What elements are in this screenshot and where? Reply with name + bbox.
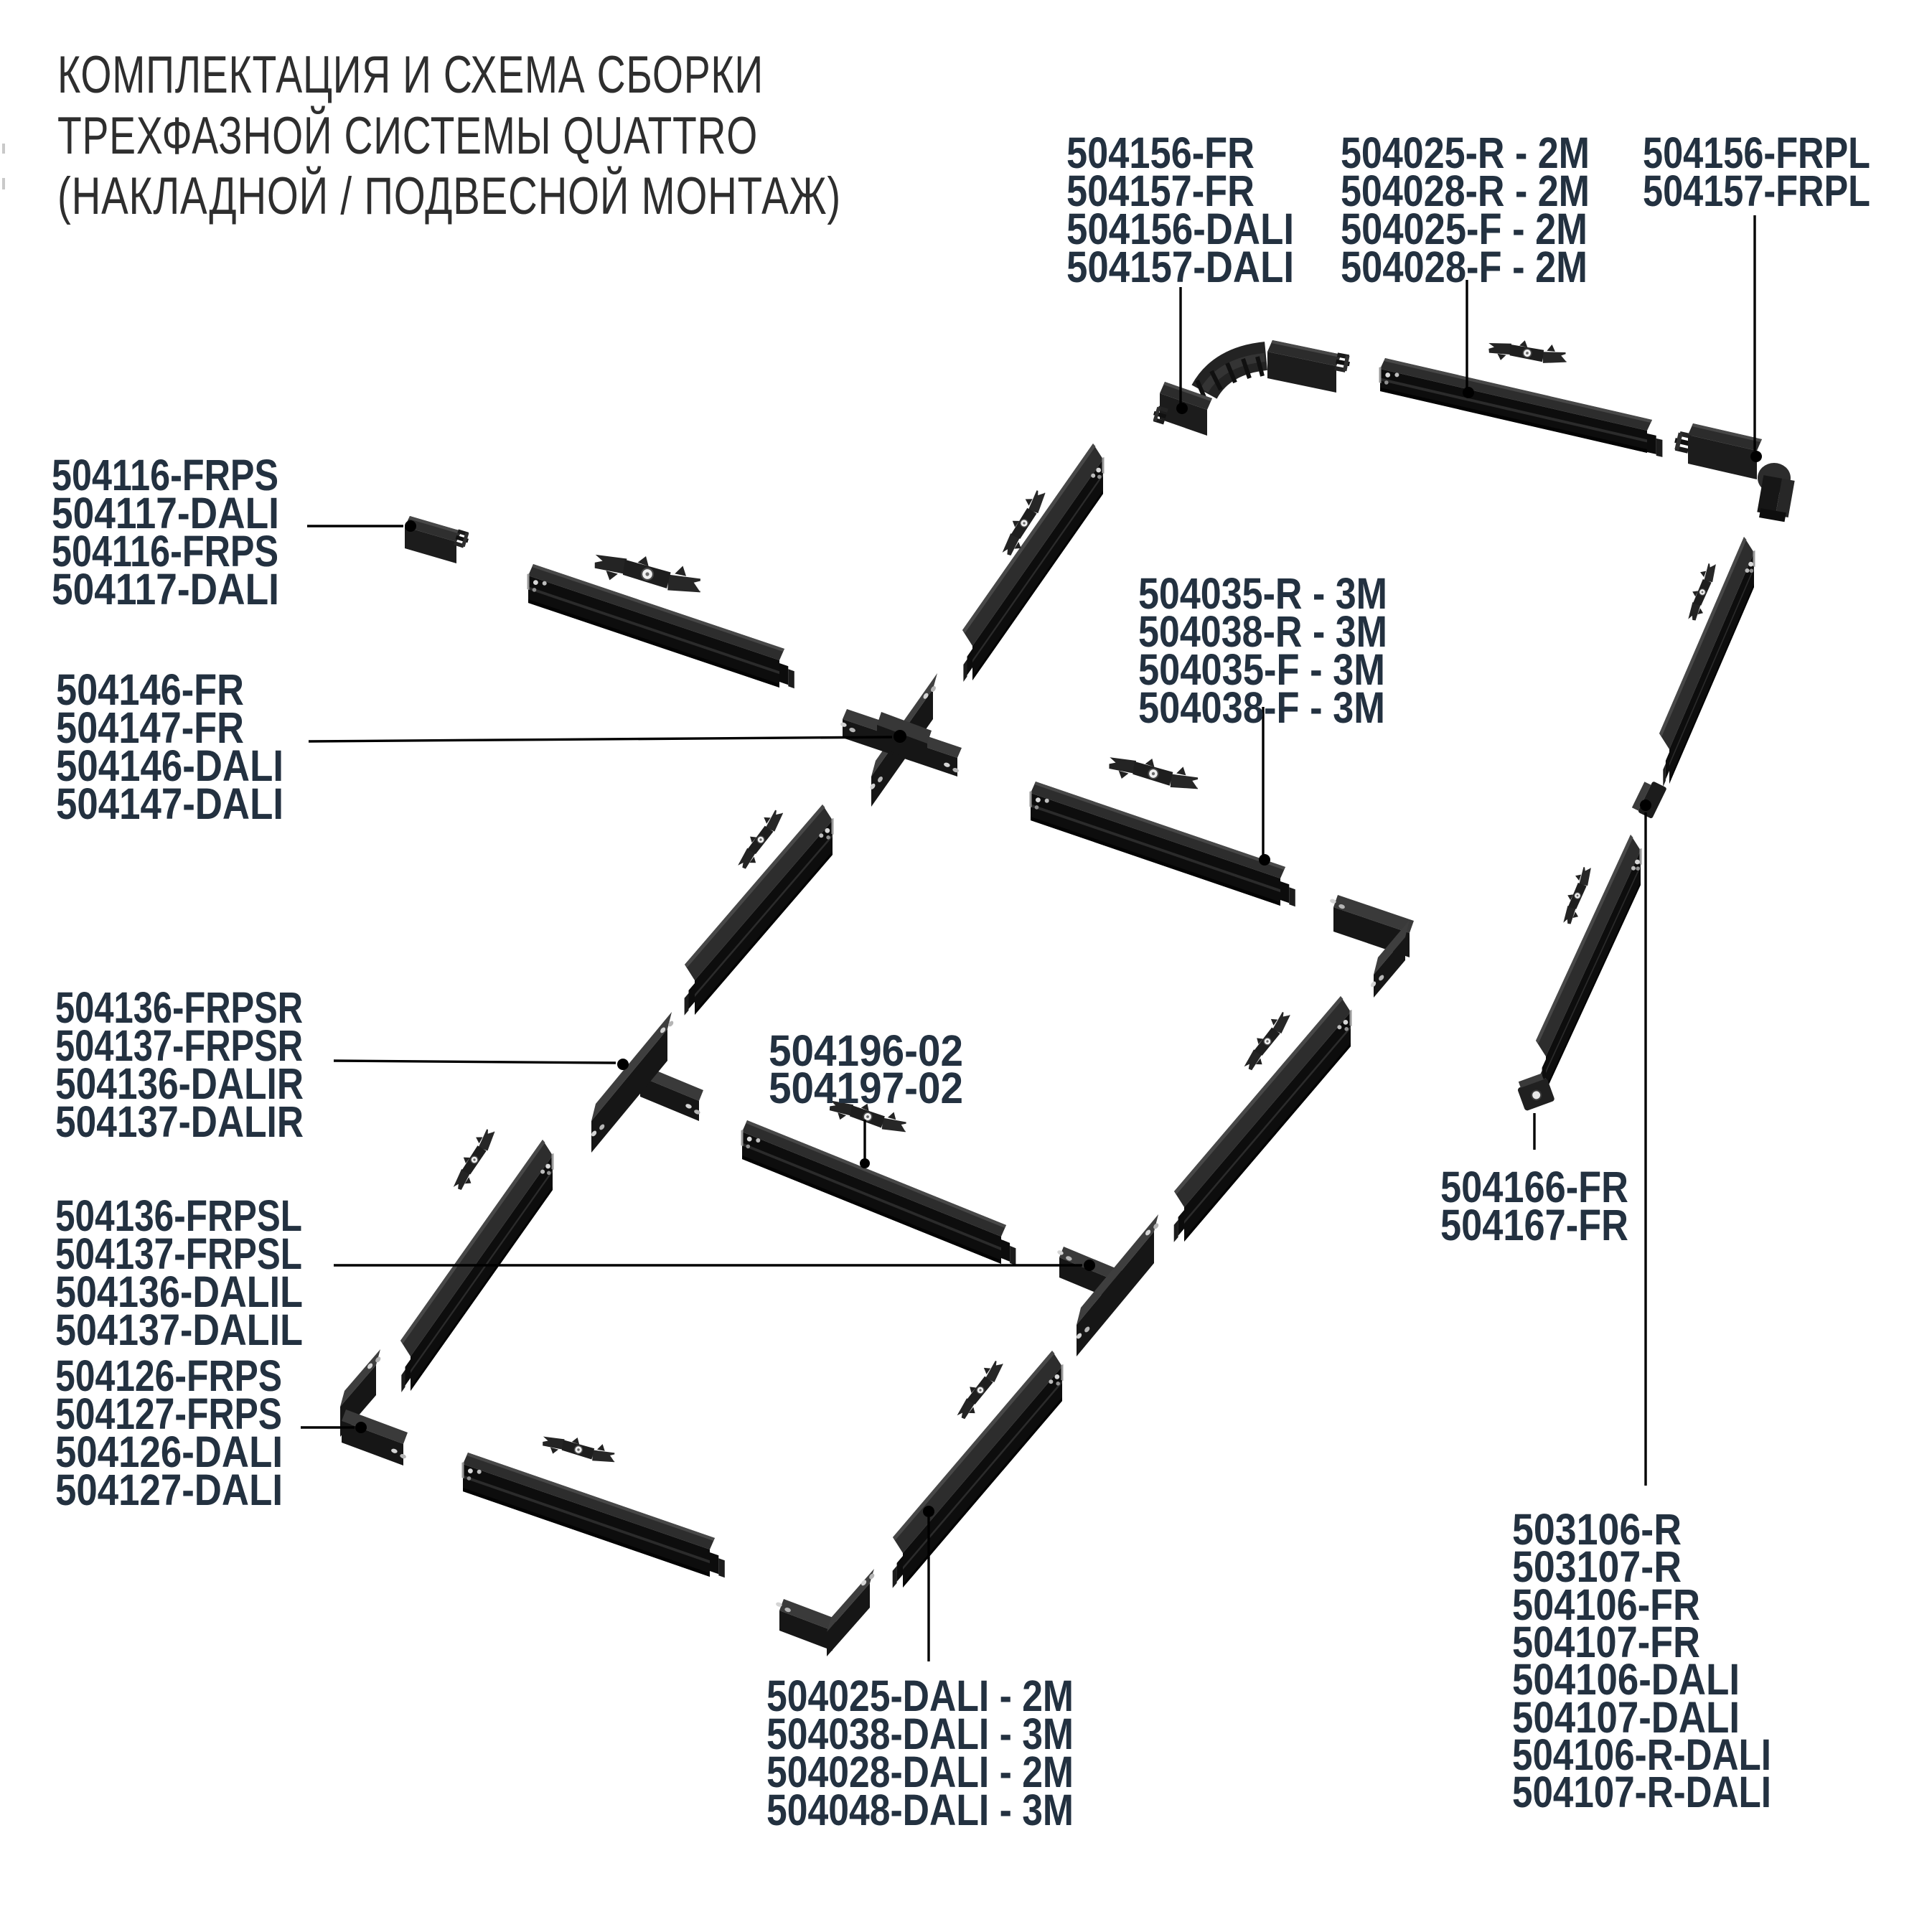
svg-text:ТРЕХФАЗНОЙ СИСТЕМЫ QUATTRO: ТРЕХФАЗНОЙ СИСТЕМЫ QUATTRO <box>57 106 758 165</box>
svg-text:504147-DALI: 504147-DALI <box>56 779 283 828</box>
svg-text:504197-02: 504197-02 <box>769 1064 963 1112</box>
svg-text:504157-DALI: 504157-DALI <box>1066 243 1294 291</box>
svg-text:504028-F - 2M: 504028-F - 2M <box>1341 243 1588 291</box>
svg-text:504107-R-DALI: 504107-R-DALI <box>1512 1768 1771 1816</box>
svg-text:504137-DALIL: 504137-DALIL <box>55 1305 303 1354</box>
svg-text:504137-DALIR: 504137-DALIR <box>55 1097 304 1146</box>
svg-text:КОМПЛЕКТАЦИЯ И СХЕМА СБОРКИ: КОМПЛЕКТАЦИЯ И СХЕМА СБОРКИ <box>57 46 764 104</box>
svg-text:504117-DALI: 504117-DALI <box>52 565 279 614</box>
svg-text:504157-FRPL: 504157-FRPL <box>1643 167 1870 215</box>
svg-text:504048-DALI - 3M: 504048-DALI - 3M <box>766 1786 1074 1834</box>
svg-text:504127-DALI: 504127-DALI <box>55 1466 283 1514</box>
svg-text:504167-FR: 504167-FR <box>1440 1201 1628 1249</box>
svg-text:504038-F - 3M: 504038-F - 3M <box>1138 683 1385 732</box>
svg-text:(НАКЛАДНОЙ / ПОДВЕСНОЙ МОНТАЖ): (НАКЛАДНОЙ / ПОДВЕСНОЙ МОНТАЖ) <box>57 167 841 225</box>
